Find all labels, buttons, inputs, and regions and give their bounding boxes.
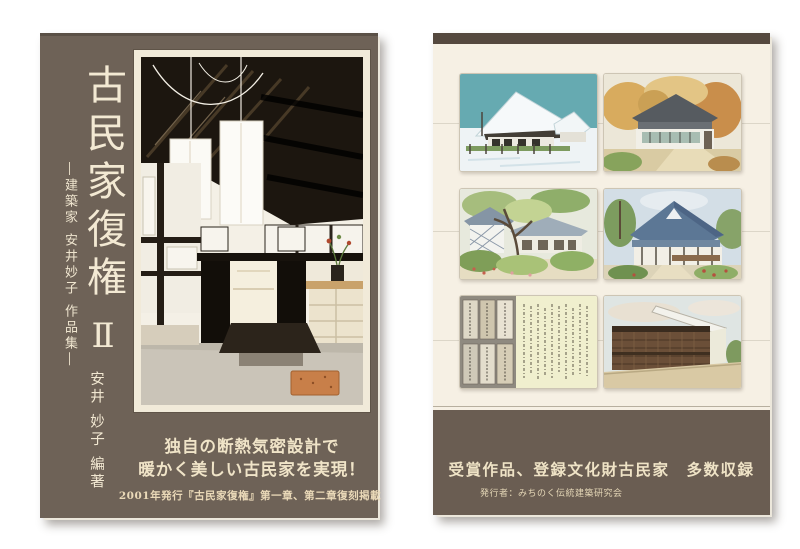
- front-title-block: 古民家復権 Ⅱ: [70, 64, 136, 404]
- front-slogan-line1: 独自の断熱気密設計で: [133, 435, 371, 458]
- painting-storehouse: [603, 295, 742, 389]
- book-covers-image: 古民家復権 Ⅱ ―建築家 安井妙子 作品集― 安井 妙子 編著: [0, 0, 800, 549]
- front-title-volume: Ⅱ: [91, 316, 114, 356]
- front-cover: 古民家復権 Ⅱ ―建築家 安井妙子 作品集― 安井 妙子 編著: [40, 33, 378, 518]
- band-divider-line: [433, 406, 770, 407]
- back-catch-line: 受賞作品、登録文化財古民家 多数収録: [433, 458, 770, 480]
- painting-blue-roof-house: [603, 188, 742, 280]
- interior-photo: [141, 57, 363, 405]
- front-title: 古民家復権: [81, 64, 125, 304]
- front-photo-frame: [133, 49, 371, 413]
- painting-snow-farmhouse: [459, 73, 598, 172]
- back-cover: 受賞作品、登録文化財古民家 多数収録 発行者：みちのく伝統建築研究会: [433, 33, 770, 515]
- painting-autumn-house: [603, 73, 742, 172]
- front-author: 安井 妙子 編著: [86, 371, 107, 506]
- front-slogan: 独自の断熱気密設計で 暖かく美しい古民家を実現！: [133, 435, 371, 481]
- painting-garden-house: [459, 188, 598, 280]
- front-slogan-line2: 暖かく美しい古民家を実現！: [133, 458, 371, 481]
- painting-old-documents: [459, 295, 598, 389]
- front-subtitle: ―建築家 安井妙子 作品集―: [60, 162, 79, 412]
- back-publisher-line: 発行者：みちのく伝統建築研究会: [480, 486, 623, 499]
- back-top-bar: [433, 33, 770, 44]
- front-reprint-note: 2001年発行『古民家復権』第一章、第二章復刻掲載: [100, 488, 400, 503]
